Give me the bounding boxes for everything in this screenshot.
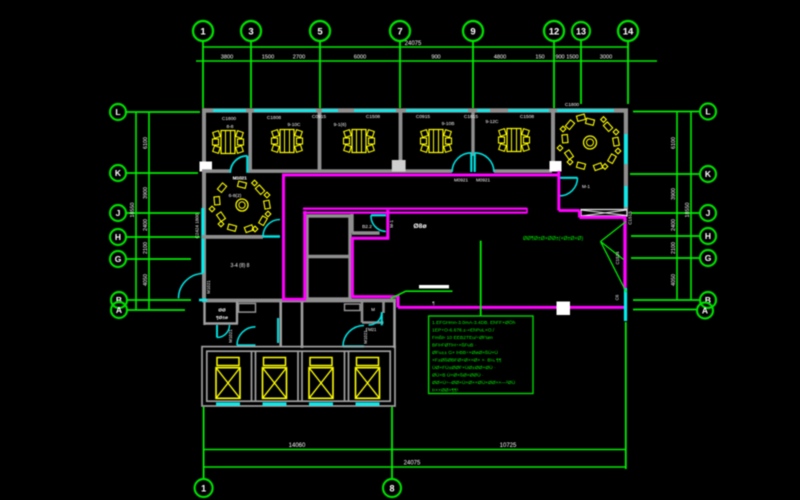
svg-text:14: 14	[623, 27, 634, 38]
svg-text:2100: 2100	[143, 242, 149, 254]
svg-text:24075: 24075	[405, 41, 422, 47]
svg-text:1: 1	[200, 27, 206, 38]
svg-text:1: 1	[201, 484, 206, 494]
svg-text:6-8(2): 6-8(2)	[229, 193, 242, 199]
svg-text:ØØ: ØØ	[218, 308, 226, 314]
svg-text:J: J	[706, 208, 711, 218]
svg-text:9-10C: 9-10C	[287, 122, 301, 128]
svg-text:1500: 1500	[262, 55, 274, 61]
svg-text:Þ××ØØ×¶¶¹: Þ××ØØ×¶¶¹	[432, 388, 459, 394]
svg-text:9-12C: 9-12C	[485, 119, 499, 125]
svg-text:4050: 4050	[143, 274, 149, 286]
svg-text:L: L	[705, 107, 710, 117]
svg-text:K: K	[115, 168, 122, 178]
svg-text:C0915: C0915	[312, 114, 326, 120]
svg-text:3900: 3900	[143, 187, 149, 199]
svg-text:900: 900	[431, 55, 440, 61]
svg-text:7: 7	[397, 27, 402, 38]
svg-text:2700: 2700	[293, 55, 305, 61]
svg-text:6100: 6100	[671, 137, 677, 149]
svg-text:C1515: C1515	[628, 211, 633, 225]
svg-text:ÙØ×FÙ±ØØF×ÙØ±ØØ×ØÙ ·: ÙØ×FÙ±ØØF×ÙØ±ØØ×ØÙ ·	[432, 364, 496, 371]
svg-text:ØÙ×B Ù×Ø×ßØ×ØØÙ ·: ØÙ×B Ù×Ø×ßØ×ØØÙ ·	[432, 372, 484, 379]
svg-text:24075: 24075	[404, 461, 421, 467]
svg-text:900 1500: 900 1500	[555, 55, 578, 61]
svg-text:C0915: C0915	[416, 114, 430, 120]
svg-text:M0921: M0921	[454, 178, 468, 183]
svg-text:B2.2: B2.2	[362, 224, 372, 230]
svg-text:Ø8ø: Ø8ø	[413, 223, 427, 230]
svg-text:H: H	[115, 232, 121, 242]
svg-text:150: 150	[535, 55, 544, 61]
svg-text:8: 8	[389, 484, 394, 494]
svg-text:B: B	[116, 295, 122, 305]
svg-text:9-1(6): 9-1(6)	[334, 122, 347, 128]
svg-text:C1808: C1808	[267, 115, 281, 121]
svg-text:M1021: M1021	[232, 176, 246, 181]
svg-text:13: 13	[576, 27, 586, 37]
svg-text:2100: 2100	[671, 242, 677, 254]
svg-text:C1815: C1815	[464, 114, 478, 120]
svg-text:C6: C6	[615, 294, 620, 300]
svg-text:3: 3	[248, 27, 253, 38]
svg-text:9-10B: 9-10B	[442, 121, 455, 127]
svg-text:C1800: C1800	[222, 116, 236, 122]
svg-text:G: G	[115, 254, 122, 264]
svg-text:4800: 4800	[494, 55, 506, 61]
svg-text:H: H	[705, 231, 711, 241]
svg-text:1EP+O-6.678.±-«EhPuL×O./: 1EP+O-6.678.±-«EhPuL×O./	[432, 328, 495, 334]
svg-text:ØØ¶Ø±Ø×ØØ±(×Ø±Ø×Ø): ØØ¶Ø±Ø×ØØ±(×Ø±Ø×Ø)	[523, 236, 583, 242]
svg-text:18550: 18550	[130, 203, 136, 218]
svg-text:6000: 6000	[354, 55, 366, 61]
svg-text:3-4 (8) 8: 3-4 (8) 8	[231, 263, 250, 269]
svg-text:12: 12	[549, 27, 560, 38]
svg-text:2400: 2400	[671, 219, 677, 231]
svg-text:ØØ×Ú÷–ØØ×Ù×Ø××ØÙ×ØØ××—²ØÚ: ØØ×Ú÷–ØØ×Ù×Ø××ØÙ×ØØ××—²ØÚ	[432, 379, 516, 386]
svg-text:C2424 1800: C2424 1800	[195, 213, 200, 238]
svg-text:C1508: C1508	[520, 114, 534, 120]
svg-text:×F±ØßØBFØ×Ø××Ø× ×· B¼ ¶¶: ×F±ØßØBFØ×Ø××Ø× ×· B¼ ¶¶	[432, 358, 502, 364]
svg-text:J: J	[116, 208, 121, 218]
svg-text:L: L	[115, 107, 120, 117]
svg-text:ØFu±± G× ÞBB÷×ØøØ×ßÙ×Ú: ØFu±± G× ÞBB÷×ØøØ×ßÙ×Ú	[432, 349, 498, 356]
svg-text:G: G	[705, 253, 712, 263]
svg-text:3800: 3800	[221, 55, 233, 61]
svg-text:3000: 3000	[600, 55, 612, 61]
svg-text:FM21: FM21	[366, 327, 377, 332]
svg-text:18550: 18550	[685, 203, 691, 218]
svg-text:3900: 3900	[671, 188, 677, 200]
svg-text:C1800: C1800	[565, 102, 579, 108]
svg-text:2400: 2400	[143, 219, 149, 231]
svg-text:M0921: M0921	[476, 178, 490, 183]
svg-text:C1524: C1524	[615, 251, 620, 264]
svg-text:K: K	[705, 169, 712, 179]
svg-text:14060: 14060	[289, 443, 306, 449]
svg-text:A: A	[116, 305, 122, 315]
svg-text:A: A	[702, 306, 708, 316]
svg-text:¶Ø±ø: ¶Ø±ø	[216, 315, 228, 321]
svg-text:C1508: C1508	[366, 114, 380, 120]
svg-text:M-1: M-1	[582, 184, 590, 189]
svg-text:5: 5	[317, 27, 323, 38]
svg-text:10725: 10725	[500, 443, 517, 449]
svg-text:M1021: M1021	[206, 280, 211, 294]
svg-text:4050: 4050	[671, 274, 677, 286]
svg-text:M1021: M1021	[228, 329, 233, 343]
svg-text:8-8: 8-8	[227, 124, 234, 130]
svg-text:BFÞFØTÞI÷×ßFuB ·: BFÞFØTÞI÷×ßFuB ·	[432, 343, 477, 349]
svg-text:6100: 6100	[143, 137, 149, 149]
svg-text:1.EFGHmn-3.0mA-3.4DB. EhFF×ØÖh: 1.EFGHmn-3.0mA-3.4DB. EhFF×ØÖh	[432, 319, 516, 326]
svg-text:M-1: M-1	[389, 220, 394, 228]
svg-text:M: M	[371, 307, 375, 312]
svg-text:FmßÞ 10 EEB2TEu/÷ØFtøn: FmßÞ 10 EEB2TEu/÷ØFtøn	[432, 335, 493, 341]
svg-text:9: 9	[470, 27, 475, 38]
